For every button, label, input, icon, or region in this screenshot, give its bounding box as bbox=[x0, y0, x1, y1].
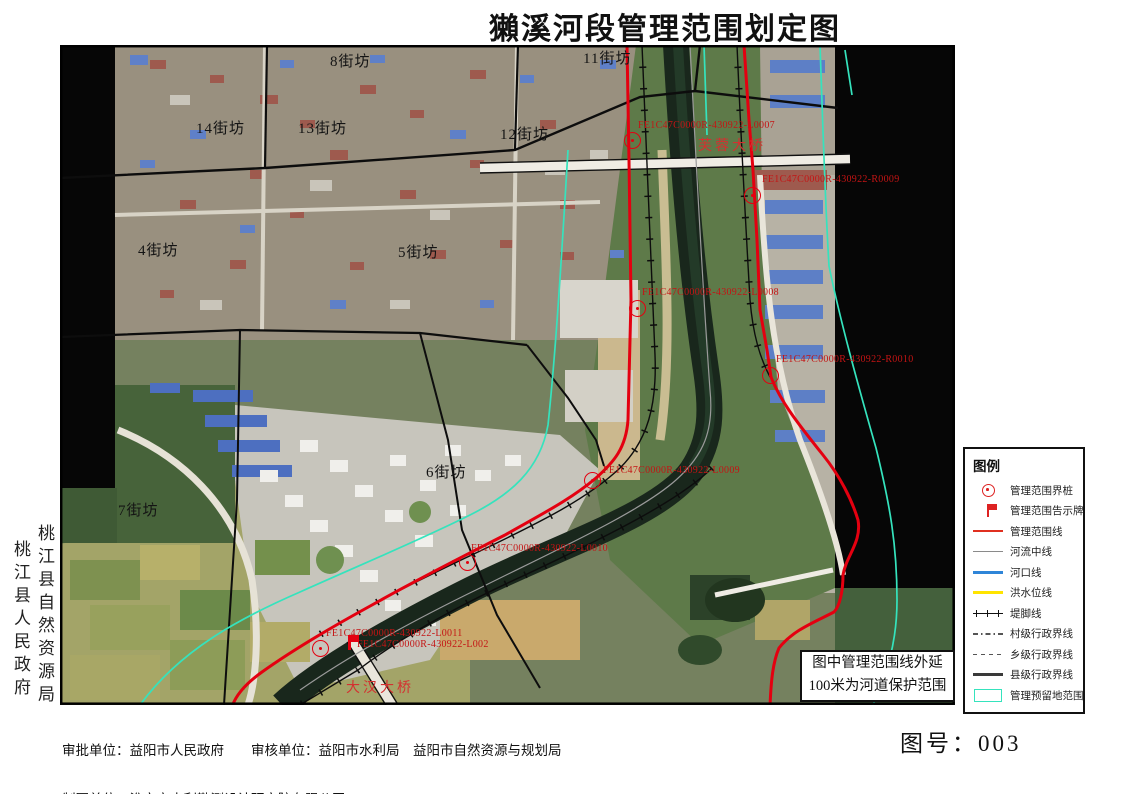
boundary-pile-marker bbox=[762, 367, 779, 384]
dike-toe-line-icon bbox=[973, 609, 1003, 618]
block-label: 4街坊 bbox=[138, 239, 179, 260]
legend-title: 图例 bbox=[973, 455, 1076, 475]
legend-row: 河口线 bbox=[972, 562, 1076, 583]
legend-row: 管理预留地范围 bbox=[972, 685, 1076, 706]
management-line-icon bbox=[973, 530, 1003, 532]
legend-row: 河流中线 bbox=[972, 542, 1076, 563]
bridge-label: 大汉大桥 bbox=[346, 677, 414, 697]
pile-code-label: FE1C47C0000R-430922-L0008 bbox=[642, 287, 779, 298]
river-centerline-icon bbox=[973, 551, 1003, 552]
boundary-pile-icon bbox=[982, 484, 995, 497]
map-overlay-layer: 8街坊11街坊14街坊13街坊12街坊4街坊5街坊6街坊7街坊FE1C47C00… bbox=[60, 45, 955, 705]
protection-note-line2: 100米为河道保护范围 bbox=[802, 675, 953, 698]
page: 獺溪河段管理范围划定图 桃江县人民政府 桃江县自然资源局 bbox=[0, 0, 1123, 794]
pile-code-label: FE1C47C0000R-430922-L0009 bbox=[603, 465, 740, 476]
bridge-label: 芙蓉大桥 bbox=[698, 135, 766, 155]
map-frame: 8街坊11街坊14街坊13街坊12街坊4街坊5街坊6街坊7街坊FE1C47C00… bbox=[60, 45, 955, 705]
pile-code-label: FE1C47C0000R-430922-L002 bbox=[357, 639, 489, 650]
legend-row: 县级行政界线 bbox=[972, 665, 1076, 686]
block-label: 5街坊 bbox=[398, 241, 439, 262]
notice-board-icon bbox=[987, 504, 990, 517]
legend-row: 管理范围线 bbox=[972, 521, 1076, 542]
pile-code-label: FE1C47C0000R-430922-R0010 bbox=[776, 354, 914, 365]
legend-panel: 图例 管理范围界桩 管理范围告示牌 管理范围线 河流中线 河口线 洪水位线 堤脚… bbox=[963, 447, 1085, 714]
legend-row: 乡级行政界线 bbox=[972, 644, 1076, 665]
legend-row: 洪水位线 bbox=[972, 583, 1076, 604]
pile-code-label: FE1C47C0000R-430922-L0007 bbox=[638, 120, 775, 131]
legend-row: 管理范围界桩 bbox=[972, 480, 1076, 501]
reserved-land-icon bbox=[974, 689, 1002, 702]
legend-row: 村级行政界线 bbox=[972, 624, 1076, 645]
block-label: 13街坊 bbox=[298, 117, 347, 138]
footer-info: 审批单位：益阳市人民政府 审核单位：益阳市水利局 益阳市自然资源与规划局 制图单… bbox=[62, 710, 562, 794]
sheet-number: 图号：003 bbox=[900, 724, 1022, 758]
pile-code-label: FE1C47C0000R-430922-L0010 bbox=[471, 543, 608, 554]
legend-row: 管理范围告示牌 bbox=[972, 501, 1076, 522]
boundary-pile-marker bbox=[584, 472, 601, 489]
side-text-government: 桃江县人民政府 bbox=[8, 540, 33, 701]
protection-note: 图中管理范围线外延 100米为河道保护范围 bbox=[800, 650, 955, 702]
boundary-pile-marker bbox=[624, 132, 641, 149]
footer-line-approval: 审批单位：益阳市人民政府 审核单位：益阳市水利局 益阳市自然资源与规划局 bbox=[62, 743, 562, 759]
page-title: 獺溪河段管理范围划定图 bbox=[400, 4, 930, 48]
village-boundary-icon bbox=[973, 633, 1003, 635]
boundary-pile-marker bbox=[459, 554, 476, 571]
block-label: 7街坊 bbox=[118, 499, 159, 520]
estuary-line-icon bbox=[973, 571, 1003, 574]
block-label: 6街坊 bbox=[426, 461, 467, 482]
block-label: 14街坊 bbox=[196, 117, 245, 138]
pile-code-label: FE1C47C0000R-430922-L0011 bbox=[326, 628, 463, 639]
block-label: 8街坊 bbox=[330, 50, 371, 71]
boundary-pile-marker bbox=[629, 300, 646, 317]
boundary-pile-marker bbox=[744, 187, 761, 204]
legend-row: 堤脚线 bbox=[972, 603, 1076, 624]
flood-level-line-icon bbox=[973, 591, 1003, 594]
side-text-resources-bureau: 桃江县自然资源局 bbox=[32, 524, 57, 708]
county-boundary-icon bbox=[973, 673, 1003, 676]
protection-note-line1: 图中管理范围线外延 bbox=[802, 652, 953, 675]
block-label: 12街坊 bbox=[500, 123, 549, 144]
pile-code-label: FE1C47C0000R-430922-R0009 bbox=[762, 174, 900, 185]
township-boundary-icon bbox=[973, 654, 1003, 656]
block-label: 11街坊 bbox=[583, 47, 631, 68]
boundary-pile-marker bbox=[312, 640, 329, 657]
notice-board-marker bbox=[348, 635, 351, 650]
